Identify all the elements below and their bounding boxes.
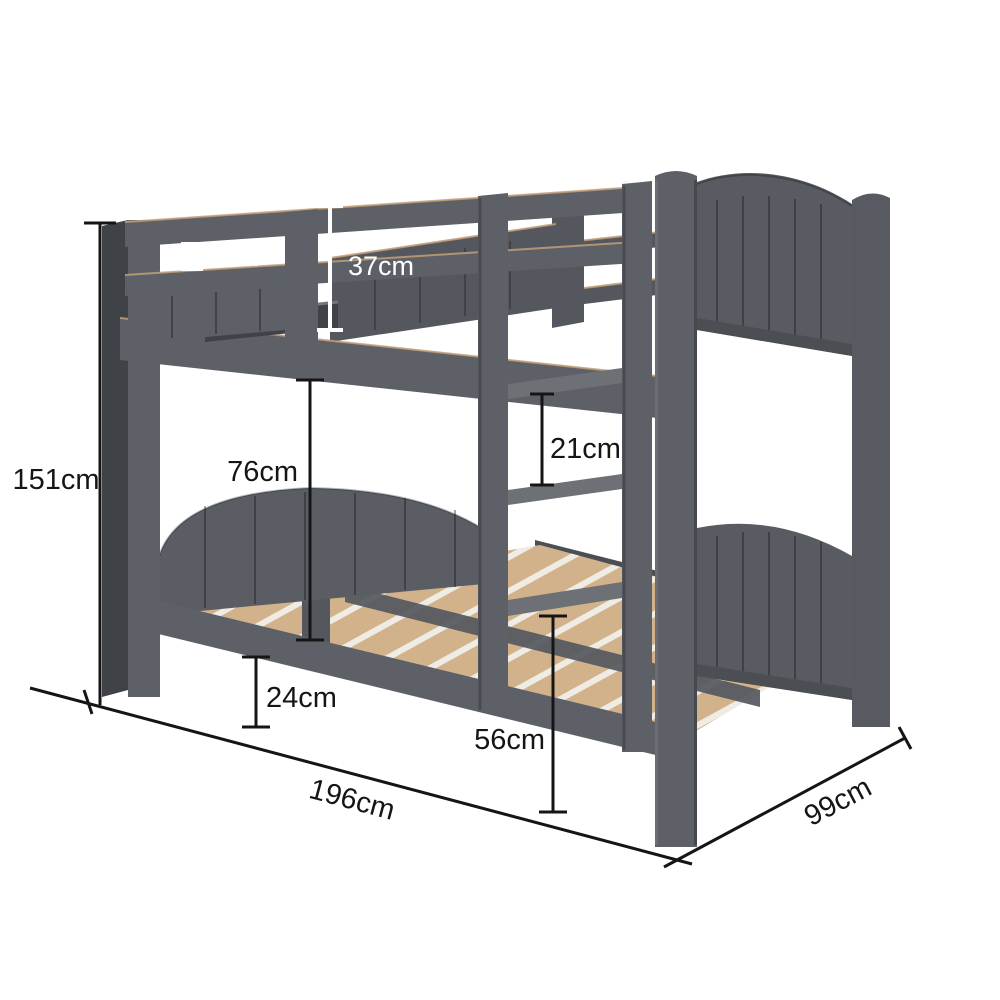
guard-mid-post (285, 209, 318, 376)
dimension-overall-width: 99cm (664, 727, 911, 867)
dimension-label-ladder-step-gap: 21cm (550, 433, 621, 465)
headboard-near-post (655, 171, 697, 847)
rear-guard-panel (330, 224, 556, 342)
dimension-label-guard-rail-height: 37cm (348, 251, 414, 281)
dimension-label-under-bed-clearance: 24cm (266, 682, 337, 714)
dimension-label-rail-gap: 8cm (208, 242, 259, 272)
ladder-left-rail (478, 193, 508, 712)
bunk-bed-dimension-diagram: 151cm 8cm 37cm 76cm 21cm 24cm 56cm (0, 0, 1000, 1000)
headboard-far-post (852, 193, 890, 727)
headboard (697, 173, 890, 727)
dimension-label-overall-width: 99cm (799, 771, 877, 833)
diagram-canvas: 151cm 8cm 37cm 76cm 21cm 24cm 56cm (0, 0, 1000, 1000)
ladder-rung (508, 474, 622, 505)
dimension-overall-height: 151cm (12, 223, 116, 705)
dimension-label-ladder-bottom-height: 56cm (474, 724, 545, 756)
ladder-right-rail (622, 181, 652, 752)
dimension-rail-gap: 8cm (181, 242, 259, 272)
dimension-label-overall-height: 151cm (12, 464, 99, 496)
dimension-label-bunk-clearance: 76cm (227, 456, 298, 488)
